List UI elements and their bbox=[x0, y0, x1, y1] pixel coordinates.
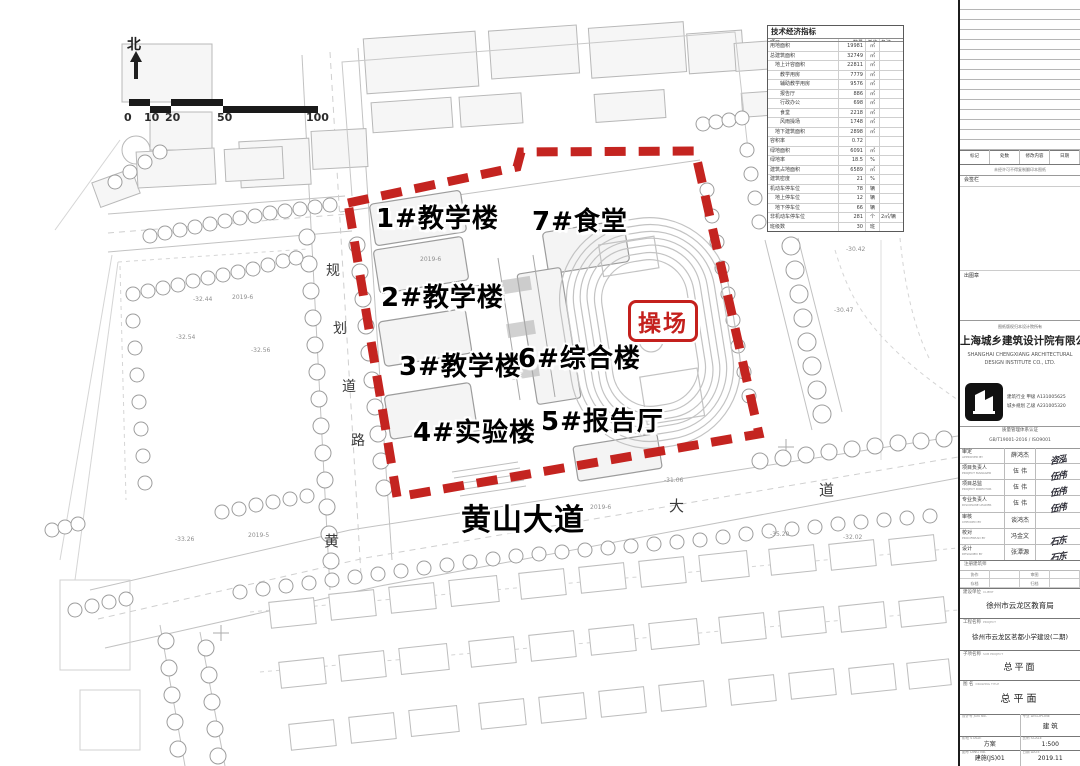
stage-scale-row: 阶段 STAGE 方案 比例 SCALE 1:500 bbox=[960, 736, 1080, 751]
survey-note: -32.54 bbox=[176, 334, 195, 341]
row-label: 地上停车位 bbox=[768, 194, 838, 203]
row-value: 12 bbox=[838, 194, 865, 203]
sheet: 北 0102050100 规划道路 黄大道 -32.442019-6-32.54… bbox=[0, 0, 1080, 766]
signer-name: 冯金文 bbox=[1005, 529, 1036, 544]
drawing-title-label: 图 名DRAWING TITLE bbox=[960, 680, 1080, 689]
col-header: 项目 bbox=[768, 39, 838, 41]
certificate-line: 城乡规划 乙级 A231005320 bbox=[1007, 402, 1080, 411]
table-row: 教学用房 7779 ㎡ bbox=[768, 71, 903, 81]
survey-note: 2019-6 bbox=[590, 504, 611, 511]
row-unit: ㎡ bbox=[865, 71, 879, 80]
table-row: 绿地面积 6091 ㎡ bbox=[768, 147, 903, 157]
row-note bbox=[879, 71, 903, 80]
revision-header: 标记处数修改内容日期 bbox=[960, 150, 1080, 165]
table-row: 报告厅 886 ㎡ bbox=[768, 90, 903, 100]
project-block: 工程名称PROJECT 徐州市云龙区茗都小学建设(二期) bbox=[960, 618, 1080, 651]
project-name: 徐州市云龙区茗都小学建设(二期) bbox=[960, 627, 1080, 647]
context-buildings bbox=[92, 22, 779, 208]
row-unit: 个 bbox=[865, 213, 879, 222]
row-note bbox=[879, 137, 903, 146]
row-label: 建筑占地面积 bbox=[768, 166, 838, 175]
road-char: 道 bbox=[342, 376, 356, 396]
row-label: 地下建筑面积 bbox=[768, 128, 838, 137]
scale-tick: 10 bbox=[144, 111, 159, 124]
table-row: 机动车停车位 78 辆 bbox=[768, 185, 903, 195]
signer-name: 张潭源 bbox=[1005, 545, 1036, 560]
row-label: 教学用房 bbox=[768, 71, 838, 80]
misc-cell: 审图 bbox=[1020, 570, 1050, 579]
row-label: 食堂 bbox=[768, 109, 838, 118]
row-label: 建筑密度 bbox=[768, 175, 838, 184]
survey-note: -31.06 bbox=[664, 477, 683, 484]
site-plan-canvas: 北 0102050100 规划道路 黄大道 -32.442019-6-32.54… bbox=[0, 0, 958, 766]
row-unit: 辆 bbox=[865, 194, 879, 203]
col-header: 备注 bbox=[879, 39, 903, 41]
signature-row: 审定 APPROVED BY 薛鸿杰 咨泓 bbox=[960, 448, 1080, 464]
row-note bbox=[879, 61, 903, 70]
row-label: 地上计容面积 bbox=[768, 61, 838, 70]
plot-seal-label: 出图章 bbox=[960, 270, 1080, 282]
road-char: 大 bbox=[669, 495, 684, 516]
signature-role: 设计 DESIGNED BY bbox=[960, 545, 1005, 560]
row-label: 地下停车位 bbox=[768, 204, 838, 213]
table-row: 非机动车停车位 281 个 2㎡/辆 bbox=[768, 213, 903, 223]
date-value: 2019.11 bbox=[1021, 755, 1080, 763]
row-value: 19981 bbox=[838, 42, 865, 51]
row-note bbox=[879, 223, 903, 232]
row-unit bbox=[865, 137, 879, 146]
scale-tick: 20 bbox=[165, 111, 180, 124]
job-cell: 设计号 JOB No. bbox=[960, 714, 1021, 736]
road-char: 规 bbox=[326, 260, 340, 280]
building-label-7: 7#食堂 bbox=[532, 208, 628, 237]
role-en: PROJECT DIRECTOR bbox=[962, 487, 1004, 491]
misc-cell: 归档 bbox=[1020, 579, 1050, 588]
row-unit: ㎡ bbox=[865, 80, 879, 89]
signer-name: 伍 伟 bbox=[1005, 496, 1036, 511]
signature-table: 审定 APPROVED BY 薛鸿杰 咨泓 项目负责人 PROJECT MANA… bbox=[960, 448, 1080, 561]
row-note bbox=[879, 147, 903, 156]
col-header: 数量 bbox=[838, 39, 865, 41]
company-name-en: SHANGHAI CHENGXIANG ARCHITECTURAL DESIGN… bbox=[960, 351, 1080, 377]
road-char: 路 bbox=[351, 430, 365, 450]
misc-cell bbox=[1050, 579, 1080, 588]
playground-label: 操场 bbox=[628, 300, 698, 342]
discipline-value: 建 筑 bbox=[1021, 719, 1080, 733]
signature-role: 审定 APPROVED BY bbox=[960, 448, 1005, 463]
row-label: 用地面积 bbox=[768, 42, 838, 51]
signature-role: 项目总监 PROJECT DIRECTOR bbox=[960, 480, 1005, 495]
signature-cell: 咨泓 bbox=[1036, 448, 1080, 463]
row-value: 18.5 bbox=[838, 156, 865, 165]
row-unit: ㎡ bbox=[865, 61, 879, 70]
cooperation-label: 会签栏 bbox=[960, 175, 1080, 187]
date-cell: 日期 DATE 2019.11 bbox=[1021, 750, 1080, 766]
iso-line: GB/T19001-2016 / ISO9001 bbox=[960, 436, 1080, 446]
row-unit: ㎡ bbox=[865, 99, 879, 108]
row-unit: ㎡ bbox=[865, 166, 879, 175]
row-value: 7779 bbox=[838, 71, 865, 80]
role-en: PROOFREAD BY bbox=[962, 536, 1004, 540]
signer-name: 伍 伟 bbox=[1005, 464, 1036, 479]
misc-cell: 存档 bbox=[960, 579, 990, 588]
role-en: CHECKED BY bbox=[962, 520, 1004, 524]
misc-cell: 协作 bbox=[960, 570, 990, 579]
row-label: 总建筑面积 bbox=[768, 52, 838, 61]
signer-name: 伍 伟 bbox=[1005, 480, 1036, 495]
iso-line: 质量管理体系认证 bbox=[960, 426, 1080, 436]
row-note bbox=[879, 175, 903, 184]
job-label: 设计号 JOB No. bbox=[960, 714, 1020, 719]
row-label: 行政办公 bbox=[768, 99, 838, 108]
row-value: 281 bbox=[838, 213, 865, 222]
row-label: 容积率 bbox=[768, 137, 838, 146]
building-label-6: 6#综合楼 bbox=[518, 345, 641, 374]
road-char: 黄 bbox=[324, 530, 339, 551]
row-label: 非机动车停车位 bbox=[768, 213, 838, 222]
subject-label: 子项名称SUB PROJECT bbox=[960, 650, 1080, 659]
row-value: 21 bbox=[838, 175, 865, 184]
scale-tick: 50 bbox=[217, 111, 232, 124]
row-value: 78 bbox=[838, 185, 865, 194]
stage-cell: 阶段 STAGE 方案 bbox=[960, 736, 1021, 750]
row-unit: ㎡ bbox=[865, 90, 879, 99]
row-value: 9576 bbox=[838, 80, 865, 89]
row-unit: ㎡ bbox=[865, 42, 879, 51]
client-name: 徐州市云龙区教育局 bbox=[960, 597, 1080, 615]
north-label: 北 bbox=[127, 34, 141, 54]
row-note bbox=[879, 90, 903, 99]
subject-name: 总平面 bbox=[960, 659, 1080, 677]
road-char: 道 bbox=[819, 479, 834, 500]
building-label-4: 4#实验楼 bbox=[413, 419, 536, 448]
table-row: 地上停车位 12 辆 bbox=[768, 194, 903, 204]
company-logo-row: 建筑行业 甲级 A131005625 城乡规划 乙级 A231005320 bbox=[960, 378, 1080, 427]
table-row: 总建筑面积 32749 ㎡ bbox=[768, 52, 903, 62]
row-unit: % bbox=[865, 156, 879, 165]
scale-cell: 比例 SCALE 1:500 bbox=[1021, 736, 1080, 750]
road-char: 划 bbox=[333, 318, 347, 338]
signature-role: 审核 CHECKED BY bbox=[960, 513, 1005, 528]
row-label: 机动车停车位 bbox=[768, 185, 838, 194]
scale-tick: 0 bbox=[124, 111, 132, 124]
table-row: 用地面积 19981 ㎡ bbox=[768, 42, 903, 52]
client-label: 建设单位CLIENT bbox=[960, 588, 1080, 597]
row-unit: ㎡ bbox=[865, 109, 879, 118]
row-unit: ㎡ bbox=[865, 52, 879, 61]
row-unit: 班 bbox=[865, 223, 879, 232]
row-value: 66 bbox=[838, 204, 865, 213]
company-logo-icon bbox=[965, 383, 1003, 421]
row-value: 2218 bbox=[838, 109, 865, 118]
row-label: 绿地面积 bbox=[768, 147, 838, 156]
survey-note: -30.42 bbox=[846, 246, 865, 253]
company-name-cn: 上海城乡建筑设计院有限公司 bbox=[960, 331, 1080, 351]
row-label: 班级数 bbox=[768, 223, 838, 232]
table-row: 风雨操场 1748 ㎡ bbox=[768, 118, 903, 128]
table-row: 行政办公 698 ㎡ bbox=[768, 99, 903, 109]
row-note bbox=[879, 42, 903, 51]
row-value: 2898 bbox=[838, 128, 865, 137]
indicators-body: 用地面积 19981 ㎡ 总建筑面积 32749 ㎡ 地上计容面积 22811 … bbox=[768, 42, 903, 231]
table-row: 容积率 0.72 bbox=[768, 137, 903, 147]
residential-blocks bbox=[60, 535, 951, 751]
survey-note: 2019-5 bbox=[248, 532, 269, 539]
row-note bbox=[879, 118, 903, 127]
avenue-label: 黄山大道 bbox=[461, 504, 585, 537]
handwritten-signature: 石东 bbox=[1050, 533, 1066, 551]
row-unit: ㎡ bbox=[865, 147, 879, 156]
row-note bbox=[879, 52, 903, 61]
title-block: 标记处数修改内容日期 未经许可不得复制翻印本图纸 会签栏 出图章 图纸版权归本设… bbox=[958, 0, 1080, 766]
building-label-1: 1#教学楼 bbox=[376, 205, 499, 234]
revision-col: 标记 bbox=[960, 150, 990, 164]
row-note bbox=[879, 185, 903, 194]
building-label-2: 2#教学楼 bbox=[381, 284, 504, 313]
row-value: 6589 bbox=[838, 166, 865, 175]
signature-role: 专业负责人 DISCIPLINE LEADER bbox=[960, 496, 1005, 511]
role-en: PROJECT MANAGER bbox=[962, 471, 1004, 475]
stage-value: 方案 bbox=[960, 741, 1020, 749]
survey-note: -35.20 bbox=[770, 531, 789, 538]
table-row: 绿地率 18.5 % bbox=[768, 156, 903, 166]
drawing-title: 总平面 bbox=[960, 689, 1080, 711]
certificates: 建筑行业 甲级 A131005625 城乡规划 乙级 A231005320 bbox=[1003, 393, 1080, 411]
row-value: 32749 bbox=[838, 52, 865, 61]
row-note bbox=[879, 80, 903, 89]
revision-col: 修改内容 bbox=[1020, 150, 1050, 164]
row-value: 6091 bbox=[838, 147, 865, 156]
row-label: 报告厅 bbox=[768, 90, 838, 99]
table-row: 食堂 2218 ㎡ bbox=[768, 109, 903, 119]
table-row: 班级数 30 班 bbox=[768, 223, 903, 232]
survey-note: -32.56 bbox=[251, 347, 270, 354]
role-en: DESIGNED BY bbox=[962, 552, 1004, 556]
number-date-row: 图号 DWG No. 建施(JS)01 日期 DATE 2019.11 bbox=[960, 750, 1080, 766]
col-header: 单位 bbox=[865, 39, 879, 41]
scale-value: 1:500 bbox=[1021, 741, 1080, 749]
row-label: 风雨操场 bbox=[768, 118, 838, 127]
row-value: 698 bbox=[838, 99, 865, 108]
table-row: 地上计容面积 22811 ㎡ bbox=[768, 61, 903, 71]
row-value: 0.72 bbox=[838, 137, 865, 146]
job-discipline-row: 设计号 JOB No. 专业 DISCIPLINE 建 筑 bbox=[960, 714, 1080, 737]
table-row: 地下停车位 66 辆 bbox=[768, 204, 903, 214]
misc-cell bbox=[990, 570, 1020, 579]
building-label-5: 5#报告厅 bbox=[541, 408, 664, 437]
row-label: 辅助教学用房 bbox=[768, 80, 838, 89]
iso-certification: 质量管理体系认证 GB/T19001-2016 / ISO9001 bbox=[960, 426, 1080, 449]
role-en: DISCIPLINE LEADER bbox=[962, 503, 1004, 507]
table-row: 建筑密度 21 % bbox=[768, 175, 903, 185]
table-row: 辅助教学用房 9576 ㎡ bbox=[768, 80, 903, 90]
discipline-cell: 专业 DISCIPLINE 建 筑 bbox=[1021, 714, 1080, 736]
signature-role: 项目负责人 PROJECT MANAGER bbox=[960, 464, 1005, 479]
project-label: 工程名称PROJECT bbox=[960, 618, 1080, 627]
row-value: 886 bbox=[838, 90, 865, 99]
subject-block: 子项名称SUB PROJECT 总平面 bbox=[960, 650, 1080, 681]
role-en: APPROVED BY bbox=[962, 455, 1004, 459]
signature-role: 校对 PROOFREAD BY bbox=[960, 529, 1005, 544]
survey-note: 2019-6 bbox=[420, 256, 441, 263]
building-label-3: 3#教学楼 bbox=[399, 353, 522, 382]
row-note: 2㎡/辆 bbox=[879, 213, 903, 222]
revision-col: 处数 bbox=[990, 150, 1020, 164]
signature-row: 校对 PROOFREAD BY 冯金文 石东 bbox=[960, 529, 1080, 545]
drawing-number: 建施(JS)01 bbox=[960, 755, 1020, 763]
row-unit: ㎡ bbox=[865, 118, 879, 127]
signer-name: 薛鸿杰 bbox=[1005, 448, 1036, 463]
row-note bbox=[879, 156, 903, 165]
row-note bbox=[879, 194, 903, 203]
survey-note: -32.02 bbox=[843, 534, 862, 541]
scale-tick: 100 bbox=[306, 111, 329, 124]
row-note bbox=[879, 99, 903, 108]
survey-note: -30.47 bbox=[834, 307, 853, 314]
revision-grid bbox=[960, 0, 1080, 151]
revision-col: 日期 bbox=[1050, 150, 1080, 164]
row-unit: ㎡ bbox=[865, 128, 879, 137]
signature-cell: 石东 bbox=[1036, 529, 1080, 544]
row-value: 22811 bbox=[838, 61, 865, 70]
misc-cell bbox=[1050, 570, 1080, 579]
row-unit: 辆 bbox=[865, 185, 879, 194]
row-value: 1748 bbox=[838, 118, 865, 127]
row-note bbox=[879, 109, 903, 118]
indicators-table: 技术经济指标 项目 数量 单位 备注 用地面积 19981 ㎡ 总建筑面积 32… bbox=[767, 25, 904, 232]
row-note bbox=[879, 166, 903, 175]
table-row: 建筑占地面积 6589 ㎡ bbox=[768, 166, 903, 176]
survey-note: 2019-6 bbox=[232, 294, 253, 301]
row-label: 绿地率 bbox=[768, 156, 838, 165]
table-row: 地下建筑面积 2898 ㎡ bbox=[768, 128, 903, 138]
drawing-title-block: 图 名DRAWING TITLE 总平面 bbox=[960, 680, 1080, 715]
row-note bbox=[879, 204, 903, 213]
survey-note: -32.44 bbox=[193, 296, 212, 303]
certificate-line: 建筑行业 甲级 A131005625 bbox=[1007, 393, 1080, 402]
misc-cell bbox=[990, 579, 1020, 588]
survey-note: -33.26 bbox=[175, 536, 194, 543]
client-block: 建设单位CLIENT 徐州市云龙区教育局 bbox=[960, 588, 1080, 619]
row-unit: 辆 bbox=[865, 204, 879, 213]
drawing-number-cell: 图号 DWG No. 建施(JS)01 bbox=[960, 750, 1021, 766]
indicators-title: 技术经济指标 bbox=[768, 26, 903, 39]
misc-cells: 协作审图存档归档 bbox=[960, 570, 1080, 589]
row-unit: % bbox=[865, 175, 879, 184]
row-value: 30 bbox=[838, 223, 865, 232]
signer-name: 谈鸿杰 bbox=[1005, 513, 1036, 528]
row-note bbox=[879, 128, 903, 137]
